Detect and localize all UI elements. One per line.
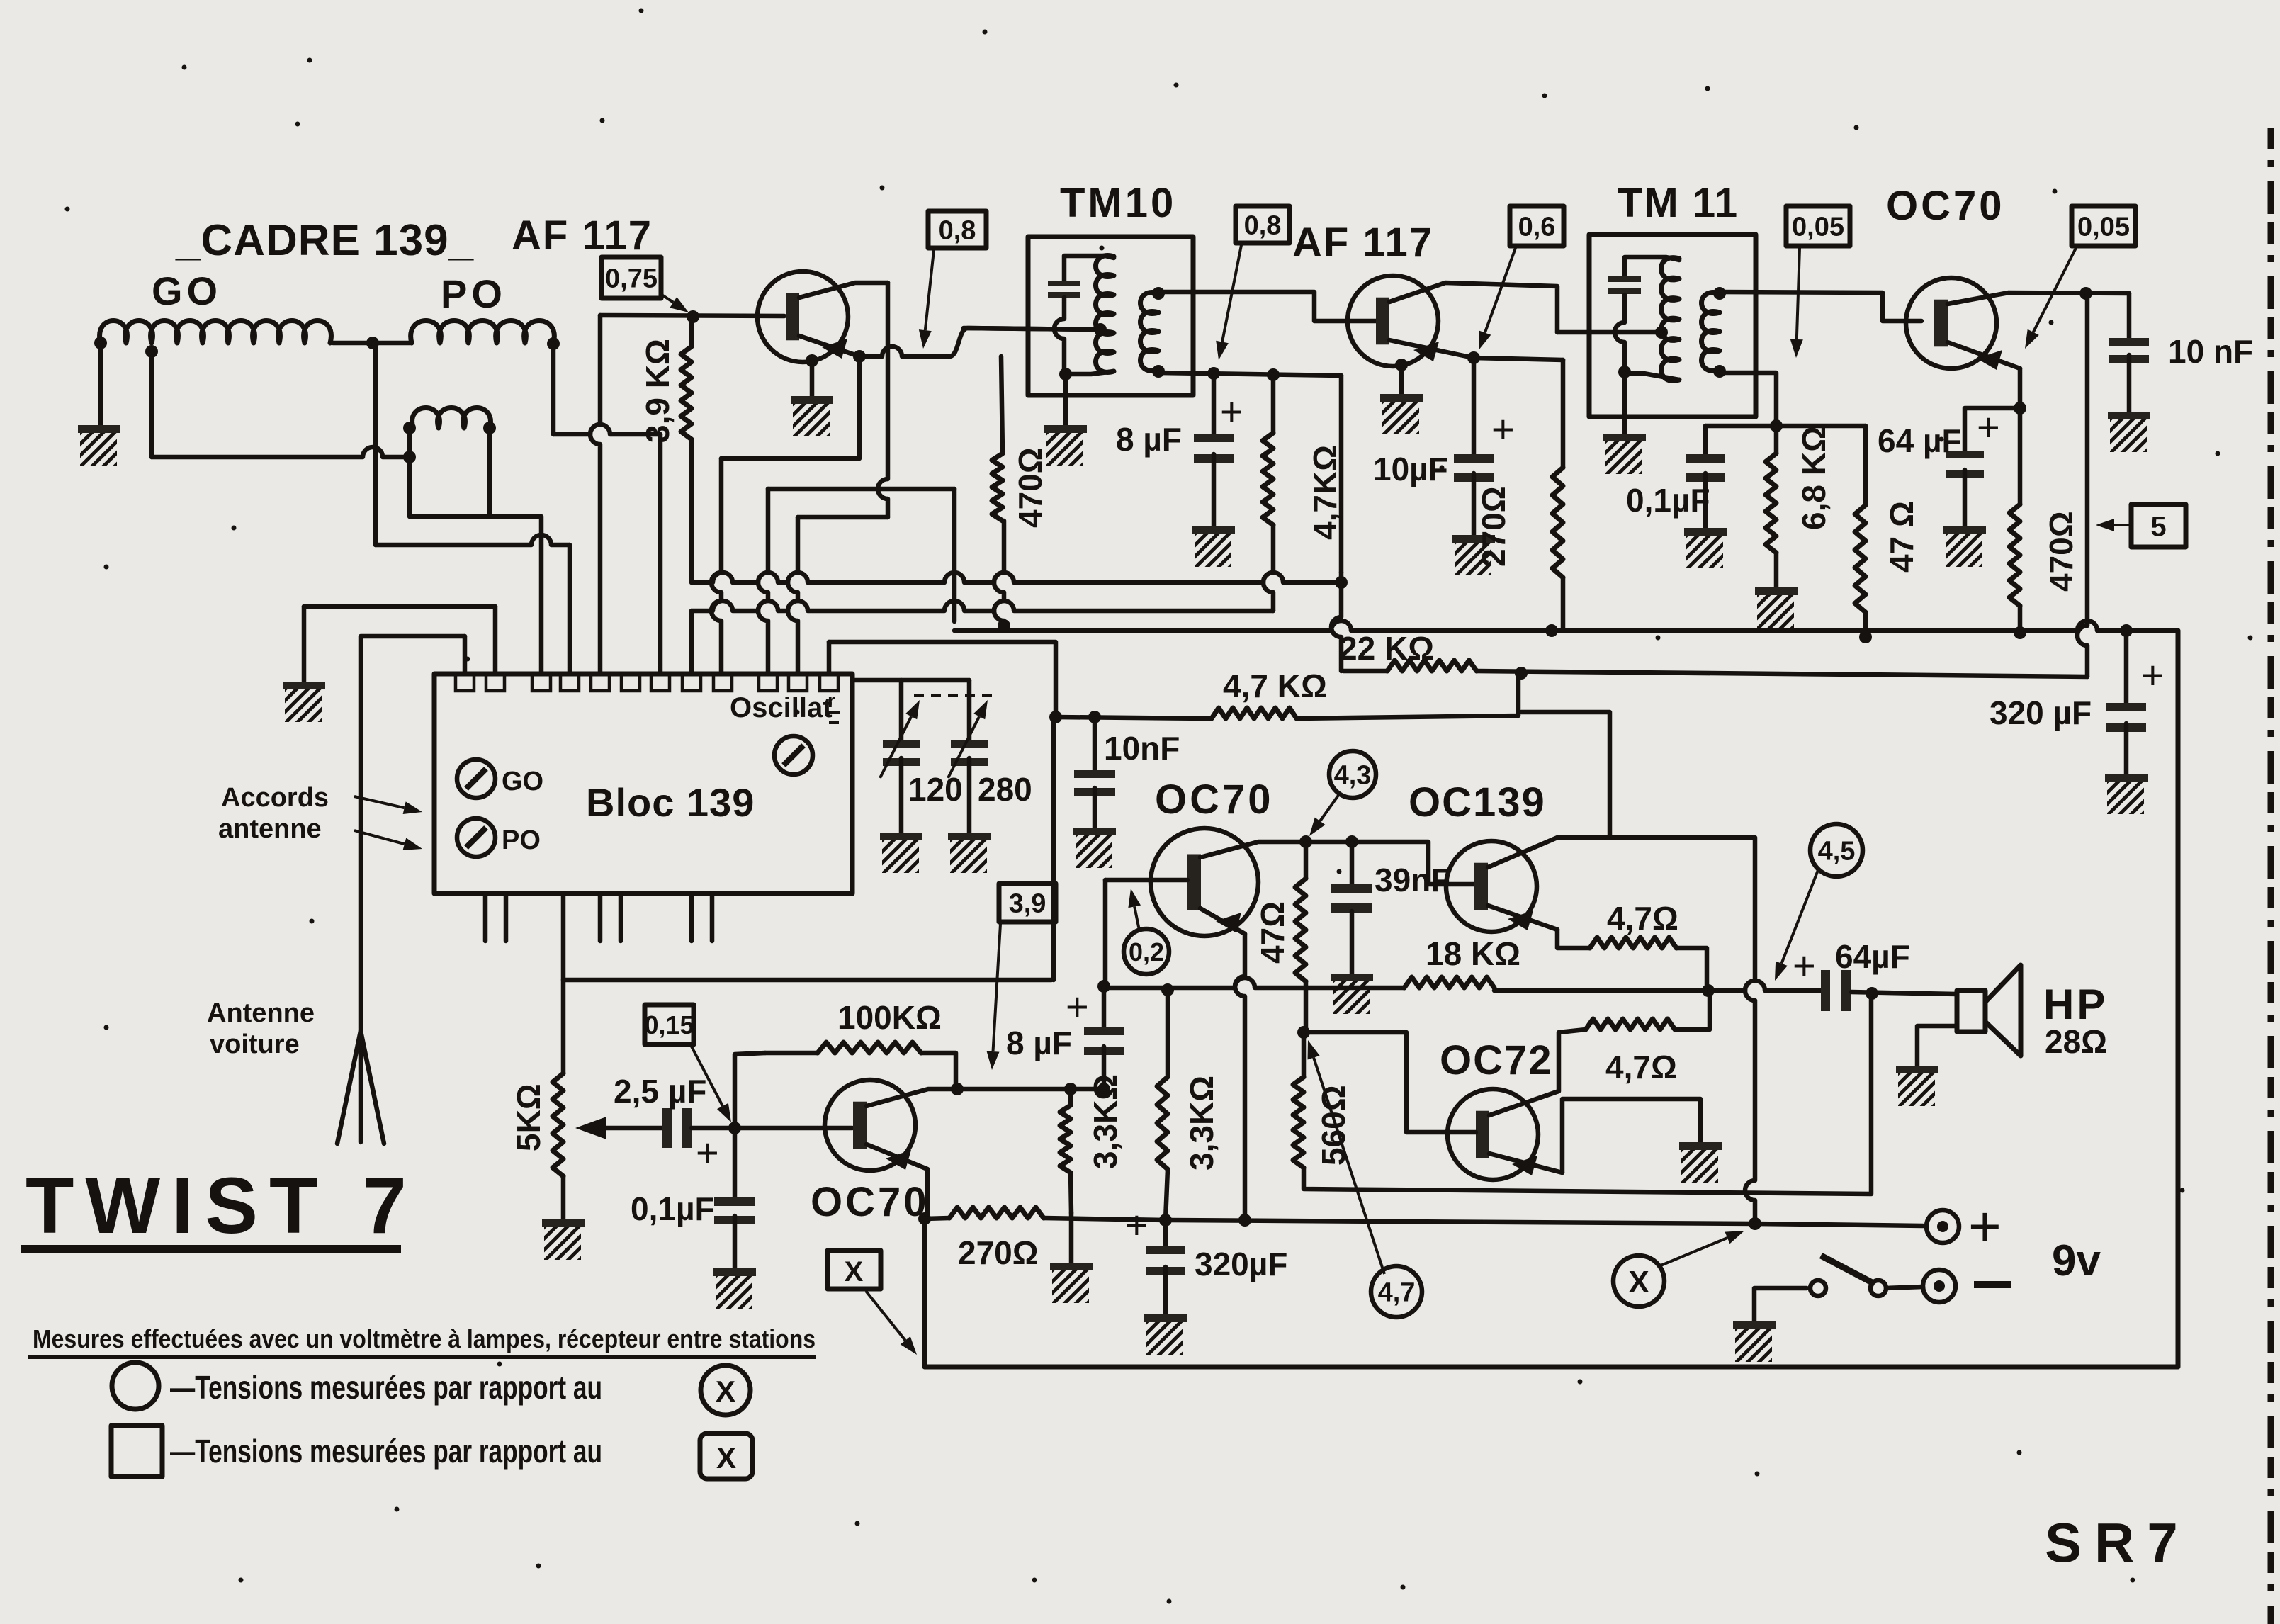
svg-text:0,05: 0,05: [1792, 213, 1844, 242]
svg-text:+: +: [1793, 943, 1816, 988]
svg-text:10µF: 10µF: [1373, 451, 1448, 487]
svg-text:HP: HP: [2043, 981, 2108, 1028]
svg-text:PO: PO: [502, 825, 541, 855]
svg-text:AF 117: AF 117: [512, 213, 653, 259]
svg-text:4,7Ω: 4,7Ω: [1607, 900, 1678, 937]
svg-text:9v: 9v: [2052, 1236, 2101, 1285]
svg-text:+: +: [2141, 653, 2165, 697]
svg-text:8 µF: 8 µF: [1116, 421, 1182, 458]
svg-text:+: +: [1125, 1202, 1149, 1247]
svg-text:0,75: 0,75: [605, 264, 658, 294]
svg-text:5: 5: [2150, 511, 2166, 542]
svg-text:voiture: voiture: [210, 1030, 300, 1059]
svg-text:X: X: [716, 1375, 735, 1408]
svg-text:4,7: 4,7: [1378, 1278, 1416, 1308]
svg-text:3,9: 3,9: [1009, 889, 1046, 919]
svg-text:28Ω: 28Ω: [2045, 1023, 2107, 1060]
svg-text:320µF: 320µF: [1195, 1246, 1287, 1282]
svg-text:TM10: TM10: [1060, 180, 1176, 226]
svg-text:GO: GO: [502, 767, 543, 796]
svg-text:0,2: 0,2: [1129, 937, 1164, 966]
svg-text:470Ω: 470Ω: [1012, 447, 1049, 528]
svg-text:10nF: 10nF: [1104, 730, 1180, 767]
svg-text:39nF: 39nF: [1375, 862, 1450, 898]
svg-text:—Tensions mesurées par rapp: —Tensions mesurées par rapport au: [170, 1433, 602, 1470]
svg-text:22 KΩ: 22 KΩ: [1339, 630, 1434, 667]
svg-text:8 µF: 8 µF: [1006, 1025, 1072, 1061]
svg-text:64µF: 64µF: [1835, 938, 1910, 975]
svg-text:3,3KΩ: 3,3KΩ: [1087, 1074, 1124, 1169]
svg-text:270Ω: 270Ω: [1475, 486, 1512, 567]
svg-text:X: X: [845, 1256, 864, 1287]
svg-text:Mesures effectuées avec un vol: Mesures effectuées avec un voltmètre à l…: [33, 1324, 816, 1353]
svg-text:10 nF: 10 nF: [2168, 333, 2253, 370]
svg-text:SR7: SR7: [2045, 1511, 2191, 1574]
svg-text:+: +: [1220, 389, 1243, 434]
svg-text:0,1µF: 0,1µF: [1626, 482, 1710, 519]
svg-text:OC139: OC139: [1409, 779, 1546, 825]
svg-text:GO: GO: [152, 269, 222, 313]
svg-text:0,05: 0,05: [2077, 213, 2130, 242]
svg-text:4,7Ω: 4,7Ω: [1605, 1049, 1677, 1086]
svg-text:+: +: [1977, 405, 2000, 449]
svg-text:Antenne: Antenne: [207, 998, 315, 1028]
svg-text:TWIST 7: TWIST 7: [26, 1161, 418, 1250]
svg-text:OC70: OC70: [1155, 777, 1274, 823]
svg-text:18 KΩ: 18 KΩ: [1426, 935, 1520, 972]
svg-text:+: +: [696, 1130, 719, 1175]
svg-text:6,8 KΩ: 6,8 KΩ: [1795, 426, 1832, 530]
svg-text:X: X: [1628, 1265, 1649, 1299]
svg-text:Accords: Accords: [221, 783, 329, 813]
svg-text:280: 280: [978, 771, 1032, 808]
svg-text:antenne: antenne: [218, 814, 322, 844]
svg-text:Bloc 139: Bloc 139: [586, 780, 755, 825]
svg-text:320 µF: 320 µF: [1990, 694, 2092, 731]
svg-text:3,3KΩ: 3,3KΩ: [1183, 1076, 1220, 1171]
svg-text:4,5: 4,5: [1818, 837, 1856, 867]
svg-text:_CADRE 139_: _CADRE 139_: [175, 216, 475, 265]
svg-text:3,9 KΩ: 3,9 KΩ: [639, 339, 676, 443]
svg-text:4,7KΩ: 4,7KΩ: [1307, 445, 1343, 540]
svg-text:0,6: 0,6: [1518, 213, 1556, 242]
svg-text:2,5 µF: 2,5 µF: [614, 1073, 706, 1110]
svg-text:100KΩ: 100KΩ: [837, 999, 942, 1036]
svg-text:0,8: 0,8: [939, 216, 976, 246]
svg-text:4,7 KΩ: 4,7 KΩ: [1223, 667, 1327, 704]
svg-text:470Ω: 470Ω: [2043, 511, 2079, 592]
svg-text:0,8: 0,8: [1244, 211, 1282, 241]
svg-text:47 Ω: 47 Ω: [1883, 501, 1920, 573]
svg-text:47Ω: 47Ω: [1254, 901, 1291, 964]
svg-text:X: X: [716, 1441, 736, 1474]
svg-text:0,15: 0,15: [644, 1010, 694, 1039]
svg-text:0,1µF: 0,1µF: [631, 1190, 715, 1227]
svg-text:OC72: OC72: [1440, 1037, 1553, 1083]
svg-text:+: +: [1491, 407, 1515, 451]
svg-text:r: r: [828, 689, 835, 711]
svg-text:120: 120: [908, 771, 963, 808]
svg-text:Oscillat: Oscillat: [730, 692, 833, 723]
svg-text:—Tensions mesurées par rapp: —Tensions mesurées par rapport au: [170, 1369, 602, 1406]
svg-text:+: +: [1968, 1195, 2002, 1258]
svg-text:64 µF: 64 µF: [1878, 422, 1962, 459]
svg-text:AF 117: AF 117: [1292, 220, 1433, 266]
svg-text:4,3: 4,3: [1334, 761, 1372, 791]
svg-text:5KΩ: 5KΩ: [510, 1083, 547, 1151]
svg-text:270Ω: 270Ω: [958, 1234, 1039, 1271]
svg-text:OC70: OC70: [811, 1179, 930, 1225]
svg-text:+: +: [1066, 984, 1089, 1029]
svg-text:TM 11: TM 11: [1618, 180, 1739, 226]
svg-text:OC70: OC70: [1886, 183, 2005, 229]
svg-text:PO: PO: [441, 271, 507, 316]
